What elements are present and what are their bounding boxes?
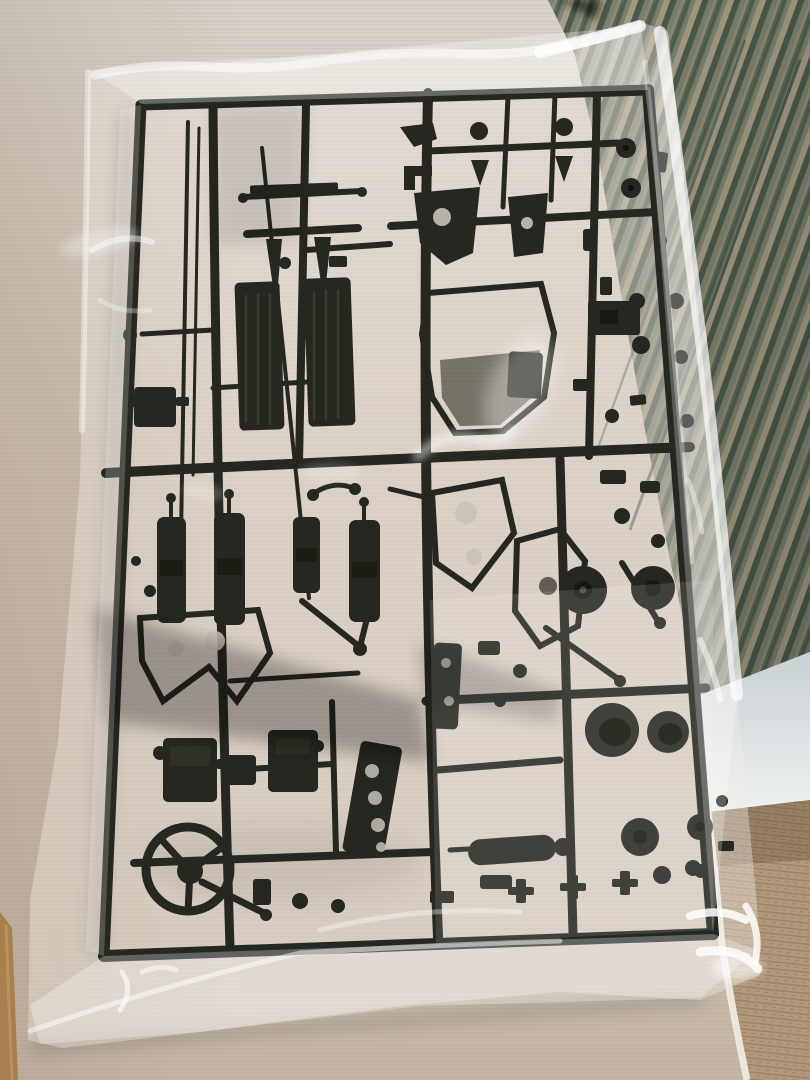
bracket-hole	[433, 208, 451, 226]
small-part	[329, 256, 347, 267]
small-part	[331, 899, 345, 913]
housing-face	[170, 746, 210, 766]
small-part	[131, 556, 141, 566]
bag-fold-shadow	[213, 104, 306, 245]
steering-spoke	[188, 871, 190, 912]
bag-crinkle-blob	[711, 954, 763, 980]
column-end	[260, 909, 272, 921]
arm-eye	[349, 483, 361, 495]
small-part	[605, 409, 619, 423]
disc-dot	[628, 185, 634, 191]
ribbed-panel	[303, 277, 355, 427]
arm-eye	[307, 489, 319, 501]
fender-hole	[368, 791, 382, 805]
axle-hub	[555, 118, 573, 136]
small-part	[573, 379, 589, 391]
fender-hole	[365, 764, 379, 778]
small-part	[651, 534, 665, 548]
gearbox-tab	[176, 397, 189, 406]
housing-boss	[153, 746, 167, 760]
bracket-hole	[455, 502, 477, 524]
small-part	[279, 257, 291, 269]
photo-stage	[0, 0, 810, 1080]
shock-band	[296, 548, 317, 562]
bag-sheen	[300, 463, 360, 481]
small-part	[600, 470, 626, 484]
small-box	[224, 755, 256, 785]
scene	[0, 0, 810, 1080]
shock-band	[352, 562, 377, 578]
small-part	[614, 508, 630, 524]
gearbox-boss	[127, 395, 139, 407]
small-part	[640, 481, 660, 493]
small-part	[253, 879, 271, 905]
wishbone-joint	[353, 642, 367, 656]
small-part	[583, 229, 597, 251]
shock-cap	[359, 497, 369, 507]
panel-notch	[600, 310, 618, 324]
ribbed-panel	[234, 281, 284, 430]
shock-band	[217, 558, 242, 575]
disc-dot	[623, 145, 629, 151]
fender-hole	[371, 818, 385, 832]
shock-cap	[166, 493, 176, 503]
ring-part	[629, 293, 645, 309]
shock-band	[160, 560, 183, 576]
small-part	[292, 893, 308, 909]
small-part	[144, 585, 156, 597]
axle-hub	[470, 122, 488, 140]
ring-part	[632, 336, 650, 354]
small-part	[630, 394, 647, 406]
bracket-hole	[466, 549, 482, 565]
small-part	[600, 277, 612, 295]
gearbox-small	[134, 387, 176, 427]
bracket-hole	[521, 217, 533, 229]
fender-hole	[376, 842, 386, 852]
bag-frost	[430, 580, 713, 944]
spring-eye	[357, 187, 367, 197]
